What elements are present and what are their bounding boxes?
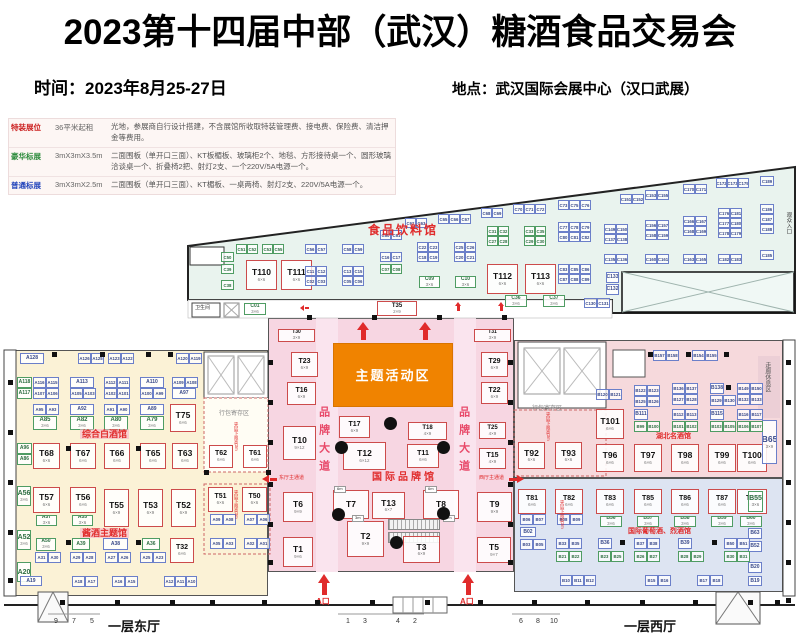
booth-B26[interactable]: B26 xyxy=(634,551,647,562)
booth-C15[interactable]: C15 xyxy=(353,266,364,276)
booth-C181[interactable]: C181 xyxy=(730,208,742,218)
booth-C23[interactable]: C23 xyxy=(428,242,439,252)
booth-C81[interactable]: C81 xyxy=(569,232,580,242)
booth-C39[interactable]: C39 xyxy=(221,264,234,274)
booth-C09[interactable]: C093×6 xyxy=(419,276,440,288)
booth-T112[interactable]: T1126×6 xyxy=(487,264,518,294)
booth-A30[interactable]: A30 xyxy=(48,552,61,563)
booth-C180[interactable]: C180 xyxy=(730,218,742,228)
booth-B33[interactable]: B33 xyxy=(556,538,569,549)
booth-A01[interactable]: A01 xyxy=(257,538,270,549)
booth-T32[interactable]: T326×6 xyxy=(170,538,194,563)
booth-C65[interactable]: C65 xyxy=(438,214,449,224)
booth-B129[interactable]: B129 xyxy=(710,395,723,406)
booth-C171[interactable]: C171 xyxy=(695,184,707,194)
booth-T3[interactable]: T36×9 xyxy=(403,536,440,563)
booth-A56[interactable]: A563×6 xyxy=(17,486,31,506)
booth-T83[interactable]: T836×6 xyxy=(596,489,624,514)
booth-B11[interactable]: B11 xyxy=(572,575,584,586)
booth-C88[interactable]: C88 xyxy=(569,274,580,284)
booth-T22[interactable]: T226×9 xyxy=(481,382,508,404)
booth-B111[interactable]: B111 xyxy=(634,409,648,420)
booth-C52[interactable]: C52 xyxy=(247,244,258,254)
booth-T97[interactable]: T976×6 xyxy=(634,444,662,472)
booth-C185[interactable]: C185 xyxy=(760,250,774,260)
booth-C29[interactable]: C29 xyxy=(524,236,535,246)
booth-T53[interactable]: T536×9 xyxy=(138,489,163,527)
booth-A17[interactable]: A17 xyxy=(85,576,98,587)
booth-C71[interactable]: C71 xyxy=(524,204,535,214)
booth-A79[interactable]: A793×6 xyxy=(140,416,164,430)
booth-T68[interactable]: T686×6 xyxy=(33,443,60,469)
booth-A38[interactable]: A38 xyxy=(103,538,128,550)
booth-C130[interactable]: C130 xyxy=(584,298,597,308)
booth-B107[interactable]: B107 xyxy=(750,421,763,432)
booth-C12[interactable]: C12 xyxy=(316,266,327,276)
booth-C151[interactable]: C151 xyxy=(620,194,632,204)
booth-C155[interactable]: C155 xyxy=(657,190,669,200)
booth-B52[interactable]: B52 xyxy=(748,541,762,552)
booth-C138[interactable]: C138 xyxy=(616,234,628,244)
booth-C83[interactable]: C83 xyxy=(558,264,569,274)
booth-C10[interactable]: C103×6 xyxy=(455,276,476,288)
booth-T18[interactable]: T184×9 xyxy=(408,422,447,440)
booth-A89[interactable]: A89 xyxy=(140,404,164,415)
booth-C156[interactable]: C156 xyxy=(645,220,657,230)
booth-B137[interactable]: B137 xyxy=(685,383,698,394)
booth-A31[interactable]: A31 xyxy=(35,552,48,563)
booth-C72[interactable]: C72 xyxy=(535,204,546,214)
booth-C169[interactable]: C169 xyxy=(695,226,707,236)
booth-T87[interactable]: T876×6 xyxy=(708,489,736,514)
booth-C01[interactable]: C013×6 xyxy=(244,303,266,315)
booth-A27[interactable]: A27 xyxy=(105,552,118,563)
booth-B112[interactable]: B112 xyxy=(672,409,685,420)
booth-B132[interactable]: B132 xyxy=(737,394,750,405)
booth-C53[interactable]: C53 xyxy=(262,244,273,254)
booth-B16[interactable]: B16 xyxy=(658,575,671,586)
booth-B138[interactable]: B138 xyxy=(710,383,724,394)
booth-B30[interactable]: B30 xyxy=(724,551,737,562)
booth-A115[interactable]: A115 xyxy=(46,377,59,388)
booth-A39[interactable]: A39 xyxy=(72,538,90,550)
booth-B127[interactable]: B127 xyxy=(672,394,685,405)
booth-C86[interactable]: C86 xyxy=(580,264,591,274)
booth-T35[interactable]: T352×9 xyxy=(377,301,417,316)
booth-C158[interactable]: C158 xyxy=(645,230,657,240)
booth-C75[interactable]: C75 xyxy=(569,200,580,210)
booth-A106[interactable]: A106 xyxy=(46,388,59,399)
booth-T75[interactable]: T756×6 xyxy=(170,404,196,432)
booth-C189[interactable]: C189 xyxy=(760,176,774,186)
booth-T86[interactable]: T866×6 xyxy=(671,489,699,514)
booth-B57[interactable]: B573×6 xyxy=(637,516,659,527)
booth-C79[interactable]: C79 xyxy=(580,222,591,232)
booth-C73[interactable]: C73 xyxy=(558,200,569,210)
booth-B120[interactable]: B120 xyxy=(596,389,609,400)
booth-C68[interactable]: C68 xyxy=(481,208,492,218)
booth-C87[interactable]: C87 xyxy=(558,274,569,284)
booth-T63[interactable]: T636×6 xyxy=(172,443,198,469)
booth-T29[interactable]: T296×9 xyxy=(481,352,508,377)
booth-T6[interactable]: T69×9 xyxy=(283,492,313,522)
booth-C167[interactable]: C167 xyxy=(695,216,707,226)
booth-B158[interactable]: B158 xyxy=(666,350,679,361)
booth-B122[interactable]: B122 xyxy=(634,385,647,396)
booth-C175[interactable]: C175 xyxy=(738,178,749,188)
booth-T15[interactable]: T154×9 xyxy=(479,448,506,469)
booth-B128[interactable]: B128 xyxy=(685,394,698,405)
booth-C20[interactable]: C20 xyxy=(454,252,465,262)
booth-A99[interactable]: A99 xyxy=(153,388,166,399)
booth-A29[interactable]: A29 xyxy=(70,552,83,563)
booth-A126[interactable]: A126 xyxy=(78,353,91,364)
booth-B56[interactable]: B563×6 xyxy=(600,516,622,527)
booth-A86[interactable]: A86 xyxy=(17,454,32,465)
booth-A55[interactable]: A553×6 xyxy=(72,515,93,526)
booth-A91[interactable]: A91 xyxy=(104,404,117,415)
booth-A122[interactable]: A122 xyxy=(121,353,134,364)
booth-C89[interactable]: C89 xyxy=(580,274,591,284)
booth-C168[interactable]: C168 xyxy=(683,226,695,236)
booth-主题活动区[interactable]: 主题活动区 xyxy=(333,343,453,407)
booth-C186[interactable]: C186 xyxy=(760,204,774,214)
booth-B18[interactable]: B18 xyxy=(710,575,723,586)
booth-T98[interactable]: T986×6 xyxy=(671,444,699,472)
booth-C26[interactable]: C26 xyxy=(465,242,476,252)
booth-A100[interactable]: A100 xyxy=(140,388,153,399)
booth-T61[interactable]: T616×6 xyxy=(243,445,267,468)
booth-T51[interactable]: T516×6 xyxy=(208,487,233,512)
booth-T10[interactable]: T109×12 xyxy=(283,426,316,460)
booth-T65[interactable]: T656×6 xyxy=(140,443,166,469)
booth-C57[interactable]: C57 xyxy=(316,244,327,254)
booth-T50[interactable]: T506×6 xyxy=(242,487,267,512)
booth-C70[interactable]: C70 xyxy=(513,204,524,214)
booth-T99[interactable]: T996×6 xyxy=(708,444,736,472)
booth-C18[interactable]: C18 xyxy=(417,252,428,262)
booth-B20[interactable]: B20 xyxy=(748,562,762,573)
booth-C11[interactable]: C11 xyxy=(305,266,316,276)
booth-C55[interactable]: C55 xyxy=(273,244,284,254)
booth-A57[interactable]: A573×6 xyxy=(36,515,57,526)
booth-T52[interactable]: T526×9 xyxy=(171,489,196,527)
booth-C78[interactable]: C78 xyxy=(569,222,580,232)
booth-T31[interactable]: T313×9 xyxy=(474,329,511,342)
booth-B21[interactable]: B21 xyxy=(556,551,569,562)
booth-A92[interactable]: A92 xyxy=(70,404,94,415)
booth-T1[interactable]: T19×6 xyxy=(283,537,313,567)
booth-A36[interactable]: A36 xyxy=(142,538,160,550)
booth-B99[interactable]: B99 xyxy=(634,421,647,432)
booth-A103[interactable]: A103 xyxy=(83,388,96,399)
booth-B29[interactable]: B29 xyxy=(691,551,704,562)
booth-B150[interactable]: B150 xyxy=(750,383,763,394)
booth-B125[interactable]: B125 xyxy=(634,396,647,407)
booth-C161[interactable]: C161 xyxy=(657,254,669,264)
booth-B100[interactable]: B100 xyxy=(647,421,660,432)
booth-C03[interactable]: C03 xyxy=(316,276,327,286)
booth-C35[interactable]: C35 xyxy=(535,226,546,236)
booth-B63[interactable]: B63 xyxy=(748,528,762,539)
booth-C131[interactable]: C131 xyxy=(597,298,610,308)
booth-C51[interactable]: C51 xyxy=(236,244,247,254)
booth-T85[interactable]: T856×6 xyxy=(634,489,662,514)
booth-B09[interactable]: B09 xyxy=(570,514,583,525)
booth-B22[interactable]: B22 xyxy=(569,551,582,562)
booth-A111[interactable]: A111 xyxy=(117,377,130,388)
booth-A52[interactable]: A523×6 xyxy=(17,530,31,550)
booth-C77[interactable]: C77 xyxy=(558,222,569,232)
booth-B38[interactable]: B38 xyxy=(647,538,660,549)
booth-C66[interactable]: C66 xyxy=(449,214,460,224)
booth-B02[interactable]: B02 xyxy=(520,527,536,537)
booth-A128[interactable]: A128 xyxy=(20,353,44,364)
booth-A108[interactable]: A108 xyxy=(185,377,198,388)
booth-C179[interactable]: C179 xyxy=(730,228,742,238)
booth-B103[interactable]: B103 xyxy=(710,421,723,432)
booth-B58[interactable]: B583×6 xyxy=(674,516,696,527)
booth-T11[interactable]: T116×6 xyxy=(407,444,439,468)
booth-B19[interactable]: B19 xyxy=(748,576,762,586)
booth-C27[interactable]: C27 xyxy=(487,236,498,246)
booth-C50[interactable]: C50 xyxy=(221,252,234,262)
booth-A25[interactable]: A25 xyxy=(140,552,153,563)
booth-A95[interactable]: A95 xyxy=(33,404,46,415)
booth-B102[interactable]: B102 xyxy=(685,421,698,432)
booth-B136[interactable]: B136 xyxy=(672,383,685,394)
booth-A07[interactable]: A07 xyxy=(244,514,257,525)
booth-A82[interactable]: A823×6 xyxy=(70,416,94,430)
booth-B106[interactable]: B106 xyxy=(737,421,750,432)
booth-B23[interactable]: B23 xyxy=(598,551,611,562)
booth-T67[interactable]: T676×6 xyxy=(70,443,96,469)
booth-B28[interactable]: B28 xyxy=(678,551,691,562)
booth-B116[interactable]: B116 xyxy=(737,409,750,420)
booth-C137[interactable]: C137 xyxy=(604,234,616,244)
booth-A19[interactable]: A19 xyxy=(20,576,42,586)
booth-C25[interactable]: C25 xyxy=(454,242,465,252)
booth-A90[interactable]: A90 xyxy=(117,404,130,415)
booth-A11[interactable]: A11 xyxy=(175,576,186,587)
booth-A85[interactable]: A853×6 xyxy=(33,416,57,430)
booth-C07[interactable]: C07 xyxy=(380,264,391,274)
booth-C19[interactable]: C19 xyxy=(428,252,439,262)
booth-C82[interactable]: C82 xyxy=(580,232,591,242)
booth-A02[interactable]: A02 xyxy=(244,538,257,549)
booth-C132[interactable]: C132 xyxy=(606,284,619,295)
booth-B121[interactable]: B121 xyxy=(609,389,622,400)
booth-C176[interactable]: C176 xyxy=(718,208,730,218)
booth-B130[interactable]: B130 xyxy=(723,395,736,406)
booth-B60[interactable]: B603×6 xyxy=(740,516,762,527)
booth-C37[interactable]: C373×6 xyxy=(543,295,565,307)
booth-B06[interactable]: B06 xyxy=(520,514,533,525)
booth-T2[interactable]: T29×9 xyxy=(347,521,384,557)
booth-T9[interactable]: T99×9 xyxy=(477,492,512,522)
booth-B115[interactable]: B115 xyxy=(710,409,724,420)
booth-A97[interactable]: A97 xyxy=(172,388,196,399)
booth-C76[interactable]: C76 xyxy=(580,200,591,210)
booth-A09[interactable]: A09 xyxy=(210,514,223,525)
booth-B65[interactable]: B653×9 xyxy=(762,420,777,464)
booth-B123[interactable]: B123 xyxy=(647,385,660,396)
booth-C136[interactable]: C136 xyxy=(616,254,628,264)
booth-B31[interactable]: B31 xyxy=(737,551,750,562)
booth-A16[interactable]: A16 xyxy=(112,576,125,587)
booth-A118[interactable]: A118 xyxy=(17,377,32,388)
booth-A109[interactable]: A109 xyxy=(172,377,185,388)
booth-B113[interactable]: B113 xyxy=(685,409,698,420)
booth-B117[interactable]: B117 xyxy=(750,409,763,420)
booth-C56[interactable]: C56 xyxy=(305,244,316,254)
booth-A12[interactable]: A12 xyxy=(164,576,175,587)
booth-B10[interactable]: B10 xyxy=(560,575,572,586)
booth-C152[interactable]: C152 xyxy=(632,194,644,204)
booth-B05[interactable]: B05 xyxy=(533,539,546,550)
booth-T92[interactable]: T926×6 xyxy=(518,442,545,469)
booth-T30[interactable]: T303×9 xyxy=(278,329,315,342)
booth-A123[interactable]: A123 xyxy=(108,353,121,364)
booth-A113[interactable]: A113 xyxy=(70,377,94,388)
booth-C150[interactable]: C150 xyxy=(616,224,628,234)
booth-B105[interactable]: B105 xyxy=(723,421,736,432)
booth-C85[interactable]: C85 xyxy=(569,264,580,274)
booth-C21[interactable]: C21 xyxy=(465,252,476,262)
booth-T25[interactable]: T254×9 xyxy=(479,422,506,439)
booth-B101[interactable]: B101 xyxy=(672,421,685,432)
booth-C173[interactable]: C173 xyxy=(727,178,738,188)
booth-C188[interactable]: C188 xyxy=(760,224,774,234)
booth-C13[interactable]: C13 xyxy=(342,266,353,276)
booth-C133[interactable]: C133 xyxy=(606,272,619,283)
booth-A117[interactable]: A117 xyxy=(17,388,32,399)
booth-C69[interactable]: C69 xyxy=(492,208,503,218)
booth-B12[interactable]: B12 xyxy=(584,575,596,586)
booth-A102[interactable]: A102 xyxy=(104,388,117,399)
booth-T93[interactable]: T936×6 xyxy=(555,442,582,469)
booth-B149[interactable]: B149 xyxy=(737,383,750,394)
booth-C59[interactable]: C59 xyxy=(353,244,364,254)
booth-C33[interactable]: C33 xyxy=(524,226,535,236)
booth-T110[interactable]: T1106×6 xyxy=(246,260,277,290)
booth-C160[interactable]: C160 xyxy=(645,254,657,264)
booth-B50[interactable]: B50 xyxy=(724,538,737,549)
booth-C32[interactable]: C32 xyxy=(498,226,509,236)
booth-A03[interactable]: A03 xyxy=(223,538,236,549)
booth-B133[interactable]: B133 xyxy=(750,394,763,405)
booth-C157[interactable]: C157 xyxy=(657,220,669,230)
booth-B157[interactable]: B157 xyxy=(653,350,666,361)
booth-C17[interactable]: C17 xyxy=(391,252,402,262)
booth-T23[interactable]: T236×9 xyxy=(291,352,318,377)
booth-B35[interactable]: B35 xyxy=(569,538,582,549)
booth-C149[interactable]: C149 xyxy=(604,224,616,234)
booth-A110[interactable]: A110 xyxy=(140,377,164,388)
booth-C178[interactable]: C178 xyxy=(718,228,730,238)
booth-B15[interactable]: B15 xyxy=(645,575,658,586)
booth-B55[interactable]: B553×6 xyxy=(748,491,763,512)
booth-A120[interactable]: A120 xyxy=(176,353,189,364)
booth-A23[interactable]: A23 xyxy=(153,552,166,563)
booth-B126[interactable]: B126 xyxy=(647,396,660,407)
booth-C135[interactable]: C135 xyxy=(604,254,616,264)
booth-C02[interactable]: C02 xyxy=(305,276,316,286)
booth-C05[interactable]: C05 xyxy=(342,276,353,286)
booth-B37[interactable]: B37 xyxy=(634,538,647,549)
booth-C170[interactable]: C170 xyxy=(683,184,695,194)
booth-B59[interactable]: B593×6 xyxy=(711,516,733,527)
booth-A119[interactable]: A119 xyxy=(189,353,202,364)
booth-A05[interactable]: A05 xyxy=(210,538,223,549)
booth-A80[interactable]: A803×6 xyxy=(104,416,128,430)
booth-T101[interactable]: T1016×6 xyxy=(596,409,624,439)
booth-T17[interactable]: T176×9 xyxy=(339,416,370,438)
booth-B36[interactable]: B36 xyxy=(598,538,612,549)
booth-A15[interactable]: A15 xyxy=(125,576,138,587)
booth-C163[interactable]: C163 xyxy=(683,254,695,264)
booth-T56[interactable]: T566×6 xyxy=(70,487,96,513)
booth-C172[interactable]: C172 xyxy=(716,178,727,188)
booth-B27[interactable]: B27 xyxy=(647,551,660,562)
booth-A107[interactable]: A107 xyxy=(33,388,46,399)
booth-C183[interactable]: C183 xyxy=(730,254,742,264)
booth-B51[interactable]: B51 xyxy=(737,538,750,549)
booth-A28[interactable]: A28 xyxy=(83,552,96,563)
booth-T81[interactable]: T816×6 xyxy=(518,489,546,514)
booth-C177[interactable]: C177 xyxy=(718,218,730,228)
booth-B39[interactable]: B39 xyxy=(678,538,692,549)
booth-C16[interactable]: C16 xyxy=(380,252,391,262)
booth-A93[interactable]: A93 xyxy=(46,404,59,415)
booth-B03[interactable]: B03 xyxy=(520,539,533,550)
booth-T96[interactable]: T966×6 xyxy=(596,444,624,472)
booth-A101[interactable]: A101 xyxy=(117,388,130,399)
booth-A10[interactable]: A10 xyxy=(186,576,197,587)
booth-C159[interactable]: C159 xyxy=(657,230,669,240)
booth-A50[interactable]: A503×6 xyxy=(36,538,56,551)
booth-C182[interactable]: C182 xyxy=(718,254,730,264)
booth-C22[interactable]: C22 xyxy=(417,242,428,252)
booth-T12[interactable]: T126×12 xyxy=(343,442,386,470)
booth-B07[interactable]: B07 xyxy=(533,514,546,525)
booth-C165[interactable]: C165 xyxy=(695,254,707,264)
booth-C38[interactable]: C38 xyxy=(221,280,234,290)
booth-C36[interactable]: C363×6 xyxy=(505,295,527,307)
booth-A96[interactable]: A96 xyxy=(17,443,32,454)
booth-T16[interactable]: T166×9 xyxy=(287,382,316,405)
booth-B155[interactable]: B155 xyxy=(705,350,718,361)
booth-C06[interactable]: C06 xyxy=(353,276,364,286)
booth-T5[interactable]: T59×7 xyxy=(477,537,511,563)
booth-A26[interactable]: A26 xyxy=(118,552,131,563)
booth-C153[interactable]: C153 xyxy=(645,190,657,200)
booth-T113[interactable]: T1136×6 xyxy=(525,264,556,294)
booth-C58[interactable]: C58 xyxy=(342,244,353,254)
booth-T13[interactable]: T136×7 xyxy=(372,492,405,519)
booth-A105[interactable]: A105 xyxy=(70,388,83,399)
booth-A18[interactable]: A18 xyxy=(72,576,85,587)
booth-C166[interactable]: C166 xyxy=(683,216,695,226)
booth-C31[interactable]: C31 xyxy=(487,226,498,236)
booth-C67[interactable]: C67 xyxy=(460,214,471,224)
booth-A116[interactable]: A116 xyxy=(33,377,46,388)
booth-T55[interactable]: T556×9 xyxy=(104,489,129,527)
booth-C08[interactable]: C08 xyxy=(391,264,402,274)
booth-C30[interactable]: C30 xyxy=(535,236,546,246)
booth-T57[interactable]: T576×6 xyxy=(33,487,60,513)
booth-C28[interactable]: C28 xyxy=(498,236,509,246)
